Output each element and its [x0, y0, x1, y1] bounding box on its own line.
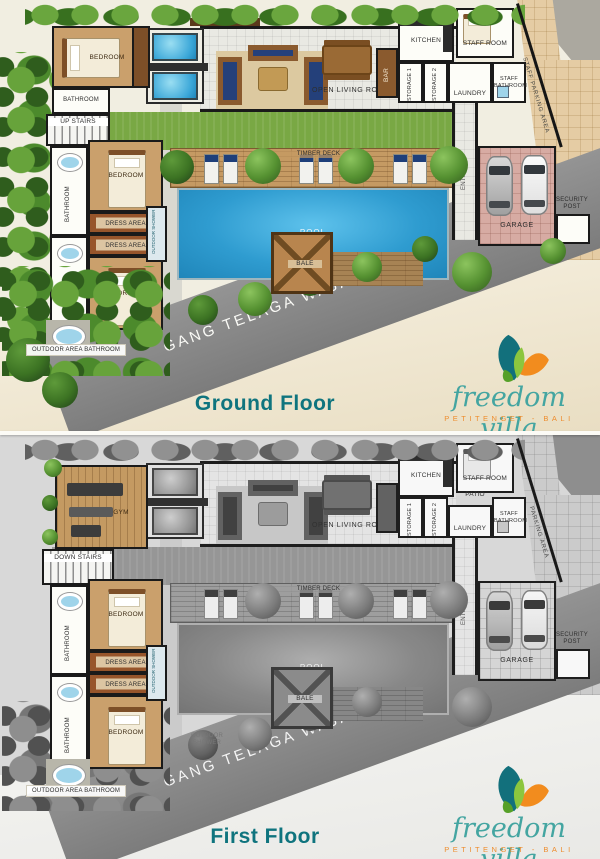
guest-bathroom-1: BATHROOM	[50, 146, 88, 236]
ground-floor-title: Ground Floor	[185, 392, 345, 416]
security-post-label: SECURITY POST	[548, 197, 596, 211]
storage-2: STORAGE 2	[423, 62, 448, 103]
sofa-left	[218, 57, 242, 105]
outdoor-shower-label: OUTDOOR SHOWER	[151, 648, 156, 694]
bush	[238, 282, 272, 316]
master-bedroom: BEDROOM	[52, 26, 134, 88]
bale-label: BALE	[288, 695, 322, 703]
outdoor-shower-gray-label: OUTDOOR SHOWER	[184, 733, 230, 747]
gym: GYM	[55, 465, 148, 549]
pond-lower	[152, 72, 198, 100]
deck-tree	[338, 148, 374, 184]
outdoor-shower: OUTDOOR SHOWER	[146, 206, 167, 262]
storage-1: STORAGE 1	[398, 62, 423, 103]
laundry-label: LAUNDRY	[450, 90, 490, 98]
floorplan-brochure: GANG TELAGA WAJA OPEN LIVING ROOM BEDROO…	[0, 0, 600, 859]
down-stairs-label: DOWN STAIRS	[44, 554, 112, 562]
guest-bedroom-2-label: BEDROOM	[101, 729, 151, 737]
garage: GARAGE	[478, 146, 556, 246]
timber-deck: TIMBER DECK	[170, 148, 465, 188]
bush	[352, 687, 382, 717]
car-silver	[486, 591, 513, 651]
water-feature	[146, 463, 204, 539]
lounger	[318, 589, 333, 619]
kitchen-label: KITCHEN	[400, 472, 452, 480]
logo-flower-icon	[482, 761, 552, 817]
brand-tagline: PETITENGET - BALI	[420, 414, 598, 423]
wardrobe	[132, 26, 150, 88]
bale-pavilion: BALE	[271, 667, 333, 729]
staff-room-label: STAFF ROOM	[458, 475, 512, 483]
bathtub	[57, 244, 83, 263]
up-stairs-label: UP STAIRS	[48, 118, 108, 126]
pond-upper	[152, 468, 198, 496]
storage-2-label: STORAGE 2	[432, 501, 439, 537]
gym-hedge	[42, 529, 58, 545]
pond-lower	[152, 507, 198, 535]
first-floor-title: First Floor	[190, 825, 340, 849]
security-post	[556, 649, 590, 679]
deck-tree	[245, 148, 281, 184]
pond-upper	[152, 33, 198, 61]
gym-hedge	[44, 459, 62, 477]
garage-label: GARAGE	[480, 222, 554, 230]
garden-hedge-top	[25, 435, 525, 465]
kitchen-label: KITCHEN	[400, 37, 452, 45]
tree	[540, 238, 566, 264]
car-silver	[486, 156, 513, 216]
guest-bedroom-1: BEDROOM	[88, 140, 163, 212]
sofa-left	[218, 492, 242, 540]
water-feature	[146, 28, 204, 104]
bathtub	[57, 683, 83, 702]
security-post-label: SECURITY POST	[548, 632, 596, 646]
patio-label: PATIO	[450, 491, 500, 499]
gym-hedge	[42, 495, 58, 511]
storage-2: STORAGE 2	[423, 497, 448, 538]
brand-tagline: PETITENGET - BALI	[420, 845, 598, 854]
car-white	[521, 590, 548, 650]
first-floor-plan: GANG TELAGA WAJA OPEN LIVING ROOM	[0, 435, 600, 859]
lounger	[299, 589, 314, 619]
exercise-bike	[71, 525, 101, 537]
guest-bathroom-2-label: BATHROOM	[65, 707, 72, 763]
guest-bathroom-1-label: BATHROOM	[65, 176, 72, 232]
outdoor-area-bathroom-label: OUTDOOR AREA BATHROOM	[26, 785, 126, 797]
outdoor-shower-label: OUTDOOR SHOWER	[151, 209, 156, 255]
lounger	[412, 589, 427, 619]
bush	[188, 295, 218, 325]
guest-bathroom-1: BATHROOM	[50, 585, 88, 675]
guest-bathroom-1-label: BATHROOM	[65, 615, 72, 671]
guest-bedroom-1-label: BEDROOM	[101, 611, 151, 619]
guest-bedroom-1: BEDROOM	[88, 579, 163, 651]
bush	[352, 252, 382, 282]
bar	[376, 483, 398, 533]
storage-2-label: STORAGE 2	[432, 66, 439, 102]
lounger	[318, 154, 333, 184]
lounger	[299, 154, 314, 184]
gym-label: GYM	[101, 509, 141, 517]
laundry: LAUNDRY	[448, 62, 492, 103]
staff-bathroom: STAFF BATHROOM	[492, 497, 526, 538]
lounger	[412, 154, 427, 184]
deck-tree	[430, 146, 468, 184]
guest-bedroom-1-label: BEDROOM	[101, 172, 151, 180]
lounger	[393, 589, 408, 619]
brand-name: freedom villa	[420, 382, 598, 431]
master-bedroom-label: BEDROOM	[82, 54, 132, 62]
bush	[452, 687, 492, 727]
bush	[412, 236, 438, 262]
laundry: LAUNDRY	[448, 505, 492, 538]
staff-room-label: STAFF ROOM	[458, 40, 512, 48]
outdoor-bath-pond	[52, 764, 86, 787]
outdoor-area-bathroom-label: OUTDOOR AREA BATHROOM	[26, 344, 126, 356]
staff-bathroom-label: STAFF BATHROOM	[494, 511, 524, 524]
lounger	[204, 589, 219, 619]
ground-floor-plan: GANG TELAGA WAJA OPEN LIVING ROOM BEDROO…	[0, 0, 600, 431]
water-bridge	[144, 498, 208, 506]
deck-tree	[245, 583, 281, 619]
dining-table	[322, 480, 372, 510]
bale-label: BALE	[288, 260, 322, 268]
bush	[452, 252, 492, 292]
bathtub	[57, 592, 83, 611]
laundry-label: LAUNDRY	[450, 525, 490, 533]
logo-flower-icon	[482, 330, 552, 386]
garden-hedge-top	[25, 0, 525, 30]
deck-tree	[338, 583, 374, 619]
lounger	[223, 154, 238, 184]
lounger	[223, 589, 238, 619]
dining-table	[322, 45, 372, 75]
bathtub	[57, 153, 83, 172]
coffee-table	[258, 502, 288, 526]
coffee-table	[258, 67, 288, 91]
bar: BAR	[376, 48, 398, 98]
bush	[238, 717, 272, 751]
outdoor-shower: OUTDOOR SHOWER	[146, 645, 167, 701]
deck-tree	[160, 150, 194, 184]
lounger	[393, 154, 408, 184]
sofa-top	[248, 480, 298, 496]
guest-bathroom-2: BATHROOM	[50, 675, 88, 769]
garage-label: GARAGE	[480, 657, 554, 665]
bar-label: BAR	[383, 56, 391, 94]
timber-deck: TIMBER DECK	[170, 583, 465, 623]
sofa-top	[248, 45, 298, 61]
staff-bathroom-label: STAFF BATHROOM	[494, 76, 524, 89]
storage-1: STORAGE 1	[398, 497, 423, 538]
storage-1-label: STORAGE 1	[407, 501, 414, 537]
deck-tree	[430, 581, 468, 619]
panel-divider	[0, 431, 600, 435]
garage: GARAGE	[478, 581, 556, 681]
guest-bedroom-2: BEDROOM	[88, 695, 163, 769]
water-bridge	[144, 63, 208, 71]
palm	[42, 372, 78, 408]
staff-bathroom: STAFF BATHROOM	[492, 62, 526, 103]
security-post	[556, 214, 590, 244]
master-bathroom-label: BATHROOM	[54, 97, 108, 104]
car-white	[521, 155, 548, 215]
bale-pavilion: BALE	[271, 232, 333, 294]
lounger	[204, 154, 219, 184]
master-bathroom: BATHROOM	[52, 88, 110, 114]
treadmill	[67, 483, 123, 496]
storage-1-label: STORAGE 1	[407, 66, 414, 102]
